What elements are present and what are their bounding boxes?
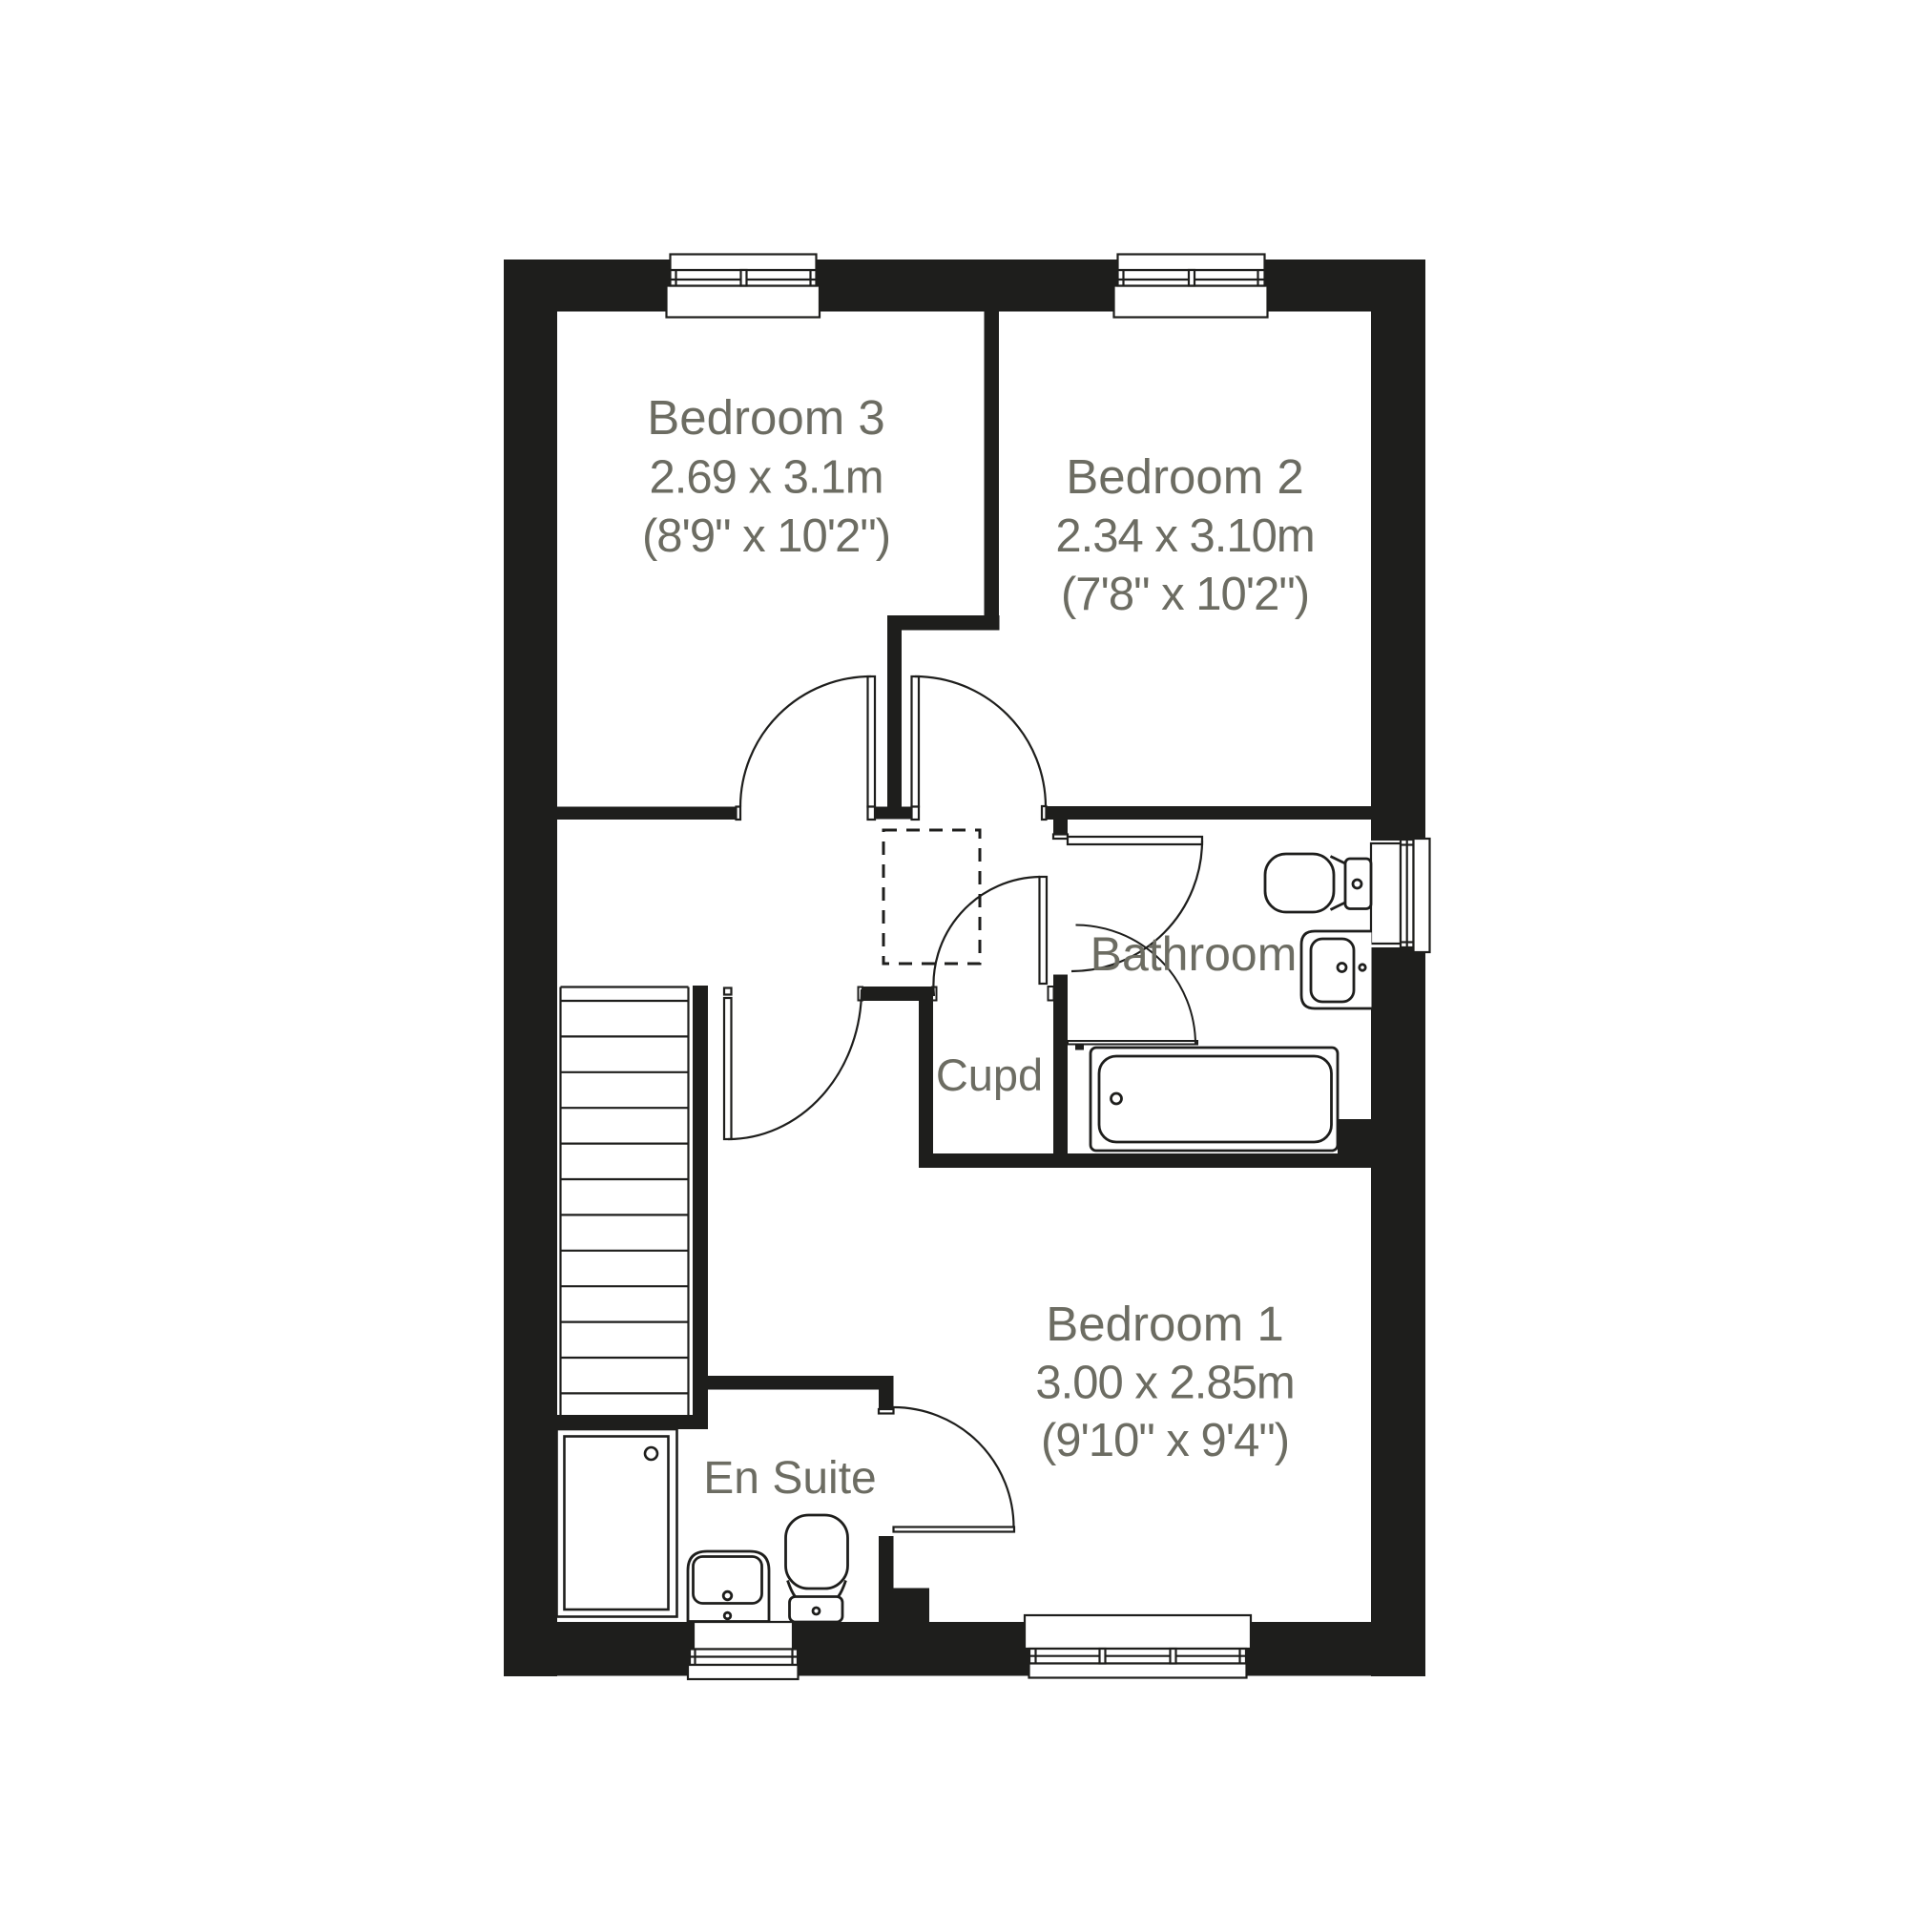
svg-text:3.00 x 2.85m: 3.00 x 2.85m [1035, 1358, 1294, 1409]
svg-text:(8'9" x 10'2"): (8'9" x 10'2") [642, 510, 890, 562]
svg-text:2.69 x 3.1m: 2.69 x 3.1m [649, 452, 883, 504]
svg-text:Bedroom 3: Bedroom 3 [647, 390, 884, 445]
svg-text:Cupd: Cupd [936, 1049, 1043, 1100]
svg-text:Bedroom 2: Bedroom 2 [1066, 449, 1303, 504]
svg-text:(7'8" x 10'2"): (7'8" x 10'2") [1061, 569, 1309, 620]
svg-text:Bedroom 1: Bedroom 1 [1046, 1297, 1283, 1351]
svg-text:En Suite: En Suite [703, 1453, 876, 1504]
svg-text:2.34 x 3.10m: 2.34 x 3.10m [1055, 510, 1314, 562]
svg-text:Bathroom: Bathroom [1091, 927, 1298, 981]
svg-text:(9'10" x 9'4"): (9'10" x 9'4") [1041, 1415, 1289, 1466]
